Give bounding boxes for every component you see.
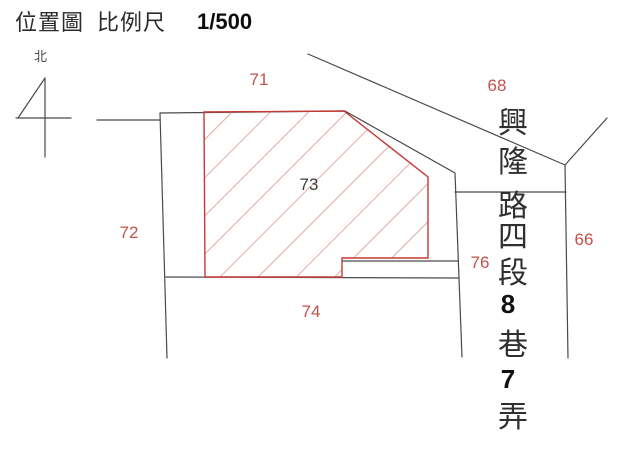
street-char: 7 bbox=[501, 364, 515, 394]
map-title: 位置圖 bbox=[15, 10, 84, 35]
subject-parcel-73-polygon bbox=[204, 111, 428, 277]
street-char: 路 bbox=[498, 190, 528, 223]
parcel-label-71: 71 bbox=[250, 70, 269, 89]
street-char: 8 bbox=[501, 289, 515, 319]
parcel-label-73: 73 bbox=[300, 175, 319, 194]
north-label: 北 bbox=[34, 49, 47, 64]
street-char: 隆 bbox=[498, 146, 528, 179]
parcel-label-68: 68 bbox=[488, 76, 507, 95]
cadastral-map-canvas: 位置圖 比例尺 1/500 北 71 68 72 66 76 74 73 興 隆… bbox=[0, 0, 640, 467]
parcel-label-66: 66 bbox=[575, 230, 594, 249]
street-char: 四 bbox=[498, 221, 528, 254]
parcel-label-74: 74 bbox=[302, 302, 321, 321]
location-map: 位置圖 比例尺 1/500 北 71 68 72 66 76 74 73 興 隆… bbox=[0, 0, 640, 467]
scale-label: 比例尺 bbox=[97, 10, 166, 35]
block-west-boundary bbox=[160, 113, 167, 358]
street-char: 弄 bbox=[498, 401, 528, 434]
scale-value: 1/500 bbox=[197, 9, 252, 34]
street-name-vertical: 興 隆 路 四 段 8 巷 7 弄 bbox=[498, 107, 528, 434]
parcel-label-76: 76 bbox=[471, 253, 490, 272]
northeast-spur-line bbox=[565, 118, 607, 165]
street-char: 巷 bbox=[498, 329, 528, 362]
street-char: 興 bbox=[498, 107, 528, 140]
street-char: 段 bbox=[498, 257, 528, 290]
north-arrow-icon bbox=[16, 78, 71, 157]
parcel-label-72: 72 bbox=[120, 223, 139, 242]
road-east-boundary bbox=[565, 165, 568, 358]
